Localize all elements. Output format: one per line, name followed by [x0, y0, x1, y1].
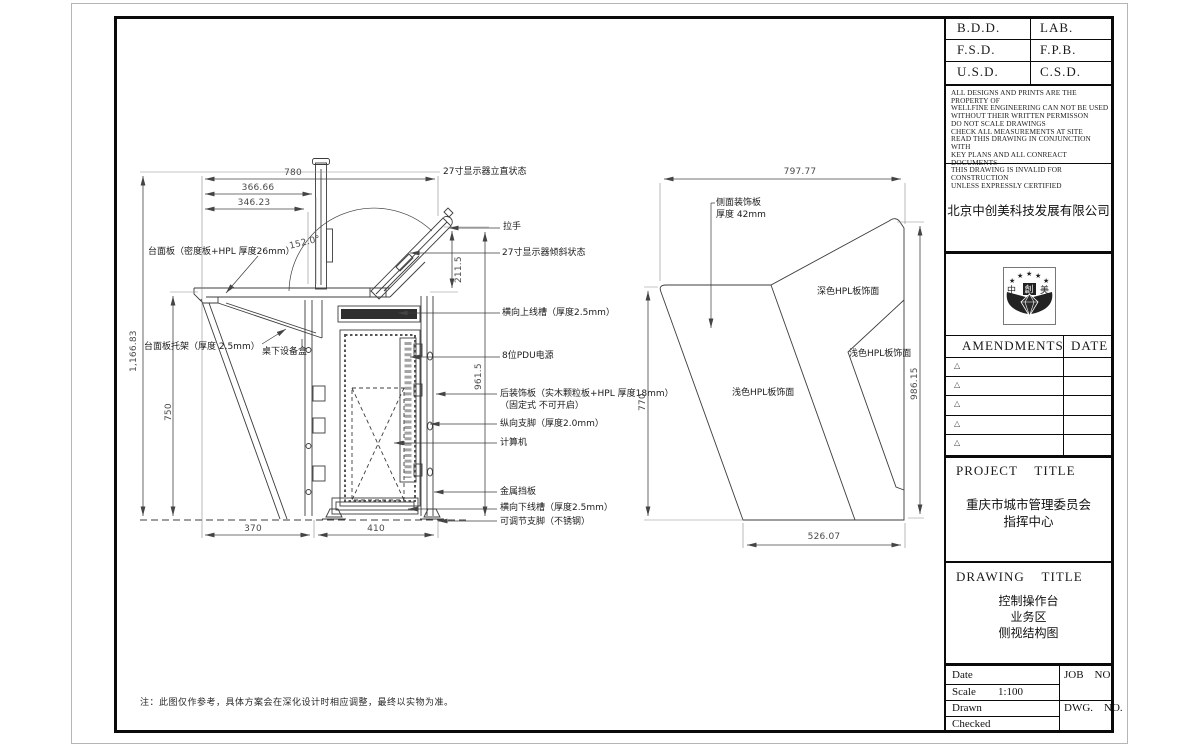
label-under-desk-box: 桌下设备盒 [262, 347, 307, 357]
drawing-line3: 侧视结构图 [946, 627, 1111, 641]
dim-monitor-offset: 211.5 [454, 256, 464, 283]
label-adjustable-foot: 可调节支脚（不锈钢） [500, 517, 590, 527]
logo-star: ★ [1009, 277, 1015, 285]
approval-usd: U.S.D. [957, 65, 999, 80]
disclaimer-line: THIS DRAWING IS INVALID FOR CONSTRUCTION [951, 166, 1111, 181]
disclaimer: ALL DESIGNS AND PRINTS ARE THE PROPERTY … [951, 89, 1111, 190]
logo-emblem: ★ ★ ★ ★ ★ 中 創 美 [1004, 268, 1055, 324]
drawing-title-label: DRAWING TITLE [956, 570, 1083, 585]
divider [946, 455, 1111, 458]
approval-fpb: F.P.B. [1040, 43, 1076, 58]
label-handle: 拉手 [503, 222, 521, 232]
label-pdu: 8位PDU电源 [502, 351, 554, 361]
leader-lines [226, 203, 715, 521]
divider [946, 684, 1059, 685]
label-side-panel-1: 侧面装饰板 [716, 198, 761, 208]
project-title-label: PROJECT TITLE [956, 464, 1076, 479]
divider [946, 700, 1111, 701]
divider [946, 84, 1111, 86]
divider [1030, 19, 1031, 84]
divider [946, 61, 1111, 62]
dim-top-width: 780 [273, 168, 313, 178]
svg-text:★: ★ [1017, 272, 1023, 280]
dim-back-height: 961.5 [474, 363, 484, 390]
project-line1: 重庆市城市管理委员会 [946, 498, 1111, 512]
svg-text:★: ★ [1026, 270, 1032, 278]
amendment-marker: △ [954, 361, 960, 370]
label-light-hpl-front: 浅色HPL板饰面 [732, 388, 794, 398]
amendment-marker: △ [954, 399, 960, 408]
divider [946, 163, 1111, 164]
dim-floor-front: 370 [233, 524, 273, 534]
divider [946, 663, 1111, 666]
label-side-panel-2: 厚度 42mm [716, 210, 766, 220]
sheet-note: 注：此图仅作参考，具体方案会在深化设计时相应调整，最终以实物为准。 [140, 698, 454, 708]
info-date-label: Date [952, 669, 973, 682]
info-scale-value: 1:100 [998, 686, 1023, 699]
approval-bdd: B.D.D. [957, 21, 1000, 36]
label-metal-baffle: 金属挡板 [500, 487, 536, 497]
label-vertical-foot: 纵向支脚（厚度2.0mm） [500, 419, 604, 429]
dim-floor-back: 410 [356, 524, 396, 534]
drawing-sheet: 1,166.83 750 780 366.66 346.23 152.0° 21… [0, 0, 1200, 750]
divider [946, 357, 1111, 358]
label-light-hpl-back: 浅色HPL板饰面 [849, 349, 911, 359]
dim-panel-height: 986.15 [910, 367, 920, 400]
disclaimer-line: READ THIS DRAWING IN CONJUNCTION WITH [951, 135, 1111, 150]
svg-text:創: 創 [1025, 284, 1034, 296]
amendments-date-header: DATE [1071, 339, 1108, 354]
dim-width-366: 366.66 [234, 183, 282, 193]
divider [946, 335, 1111, 336]
svg-text:★: ★ [1035, 272, 1041, 280]
label-lower-cable-trough: 横向下线槽（厚度2.5mm） [500, 503, 613, 513]
divider [946, 415, 1111, 416]
amendments-header: AMENDMENTS [962, 339, 1064, 354]
divider [946, 39, 1111, 40]
divider [946, 251, 1111, 254]
dim-overall-height: 1,166.83 [129, 330, 139, 372]
info-dwg-no-label: DWG. NO. [1064, 702, 1123, 715]
label-computer: 计算机 [500, 438, 527, 448]
company-name: 北京中创美科技发展有限公司 [946, 204, 1111, 218]
project-line2: 指挥中心 [946, 515, 1111, 529]
company-logo: ★ ★ ★ ★ ★ 中 創 美 [1003, 267, 1056, 325]
label-back-panel-2: （固定式 不可开启） [500, 401, 584, 411]
approval-lab: LAB. [1040, 21, 1073, 36]
info-scale-label: Scale [952, 686, 976, 699]
drawing-line2: 业务区 [946, 611, 1111, 625]
amendment-marker: △ [954, 380, 960, 389]
divider [946, 716, 1059, 717]
label-upper-cable-trough: 横向上线槽（厚度2.5mm） [502, 308, 615, 318]
info-drawn-label: Drawn [952, 702, 982, 715]
console-side-view [140, 159, 470, 521]
label-desk-panel: 台面板（密度板+HPL 厚度26mm） [148, 247, 295, 257]
dim-desk-height: 750 [164, 403, 174, 421]
info-job-no-label: JOB NO. [1064, 669, 1113, 682]
disclaimer-line: KEY PLANS AND ALL CONREACT DOCUMENTS [951, 151, 1111, 166]
divider [1059, 666, 1060, 730]
label-dark-hpl: 深色HPL板饰面 [817, 287, 879, 297]
drawing-line1: 控制操作台 [946, 595, 1111, 609]
dim-panel-width: 797.77 [776, 167, 824, 177]
label-monitor-tilted: 27寸显示器倾斜状态 [502, 248, 585, 258]
dim-panel-left-height: 770 [638, 393, 648, 411]
dim-panel-bottom-width: 526.07 [800, 532, 848, 542]
disclaimer-line: ALL DESIGNS AND PRINTS ARE THE PROPERTY … [951, 89, 1111, 104]
label-monitor-upright: 27寸显示器立直状态 [443, 167, 526, 177]
info-checked-label: Checked [952, 718, 990, 731]
approval-csd: C.S.D. [1040, 65, 1081, 80]
dim-width-346: 346.23 [230, 198, 278, 208]
amendment-marker: △ [954, 419, 960, 428]
svg-text:★: ★ [1043, 277, 1049, 285]
disclaimer-line: UNLESS EXPRESSLY CERTIFIED [951, 182, 1111, 190]
divider [946, 561, 1111, 563]
divider [946, 376, 1111, 377]
amendment-marker: △ [954, 438, 960, 447]
approval-fsd: F.S.D. [957, 43, 996, 58]
label-desk-bracket: 台面板托架（厚度 2.5mm） [144, 342, 260, 352]
side-panel-view [660, 219, 904, 520]
divider [946, 434, 1111, 435]
divider [946, 395, 1111, 396]
